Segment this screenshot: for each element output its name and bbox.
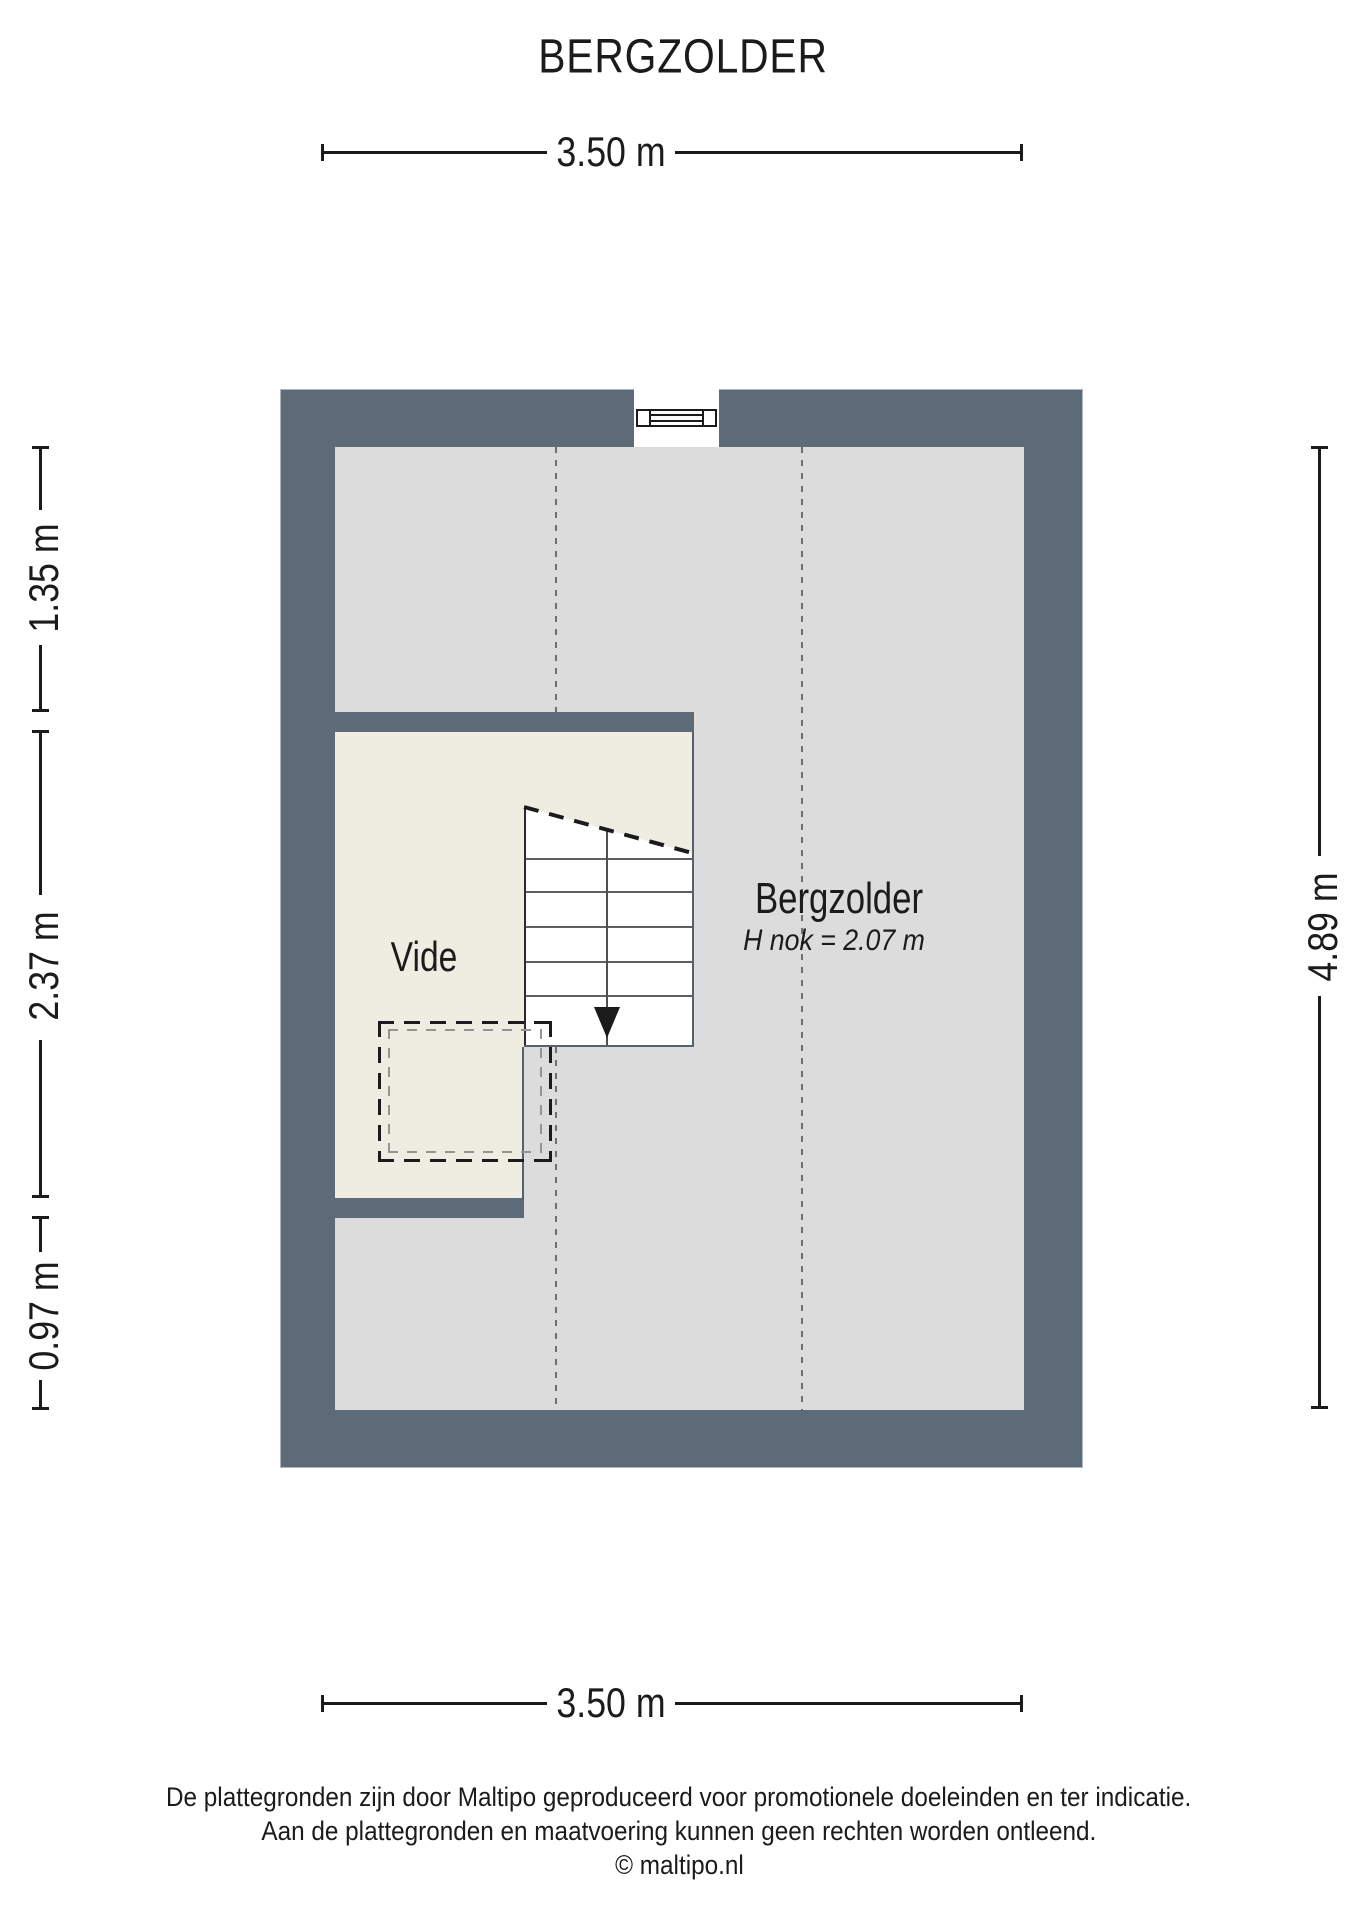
dimension-tick (1020, 1695, 1023, 1712)
dimension-tick (32, 1195, 49, 1198)
footer-line: De plattegronden zijn door Maltipo gepro… (0, 1780, 1358, 1814)
dashed-box-inner-edge (388, 1029, 390, 1153)
dimension-line (39, 1040, 42, 1197)
roof-line-dashed (555, 447, 557, 712)
floorplan-document: BERGZOLDER 3.50 m 1.35 m 2.37 m 0.97 m 4… (0, 0, 1358, 1920)
dimension-line (322, 151, 547, 154)
dimension-left-middle-label: 2.37 m (20, 911, 68, 1020)
dashed-box-inner-edge (388, 1151, 542, 1153)
dimension-line (322, 1702, 547, 1705)
dimension-top-label: 3.50 m (556, 128, 665, 176)
internal-wall-bottom (333, 1198, 524, 1218)
stair-direction-arrow-icon (594, 1007, 620, 1038)
window-icon (636, 409, 717, 427)
dashed-box-edge (549, 1021, 552, 1162)
stair-tread (524, 891, 692, 893)
dimension-line (39, 448, 42, 510)
dimension-line (675, 1702, 1023, 1705)
window-glazing-line (651, 420, 702, 422)
stair-tread (524, 995, 692, 997)
room-label-vide: Vide (391, 933, 458, 981)
stair-tread (524, 858, 692, 860)
vide-edge-line (522, 1047, 524, 1200)
dimension-tick (32, 709, 49, 712)
dashed-box-edge (378, 1021, 381, 1162)
dimension-left-top-label: 1.35 m (20, 523, 68, 632)
roof-line-dashed (555, 1047, 557, 1410)
room-label-bergzolder: Bergzolder (755, 874, 923, 924)
window-glazing-line (651, 414, 702, 416)
footer-line-text: De plattegronden zijn door Maltipo gepro… (166, 1780, 1191, 1814)
dimension-bottom-label: 3.50 m (556, 1679, 665, 1727)
page-title: BERGZOLDER (538, 30, 828, 85)
window-mullion (702, 411, 704, 425)
internal-wall-top (333, 712, 694, 732)
footer-line: © maltipo.nl (0, 1848, 1358, 1882)
dashed-box-edge (378, 1159, 552, 1162)
dimension-line (39, 1218, 42, 1252)
footer-line-text: Aan de plattegronden en maatvoering kunn… (262, 1814, 1097, 1848)
dimension-tick (1020, 144, 1023, 161)
dimension-line (675, 151, 1023, 154)
footer-line: Aan de plattegronden en maatvoering kunn… (0, 1814, 1358, 1848)
dimension-line (39, 1380, 42, 1409)
dashed-box-inner-edge (388, 1029, 542, 1031)
footer-disclaimer: De plattegronden zijn door Maltipo gepro… (0, 1780, 1358, 1882)
dimension-line (1318, 996, 1321, 1409)
dimension-line (39, 732, 42, 895)
dimension-line (1318, 448, 1321, 856)
vide-floor (335, 1047, 522, 1198)
dashed-box-edge (378, 1021, 552, 1024)
dimension-line (39, 645, 42, 711)
footer-copyright: © maltipo.nl (615, 1848, 744, 1882)
room-ridge-height-note: H nok = 2.07 m (743, 924, 925, 958)
dimension-right-label: 4.89 m (1299, 872, 1347, 981)
stair-edge-line (524, 807, 526, 1047)
stair-tread (524, 926, 692, 928)
stair-tread (524, 961, 692, 963)
vide-edge-line (692, 732, 694, 1047)
dimension-tick (32, 1407, 49, 1410)
dimension-left-bottom-label: 0.97 m (20, 1261, 68, 1370)
dashed-box-inner-edge (540, 1029, 542, 1153)
dimension-tick (1311, 1406, 1328, 1409)
